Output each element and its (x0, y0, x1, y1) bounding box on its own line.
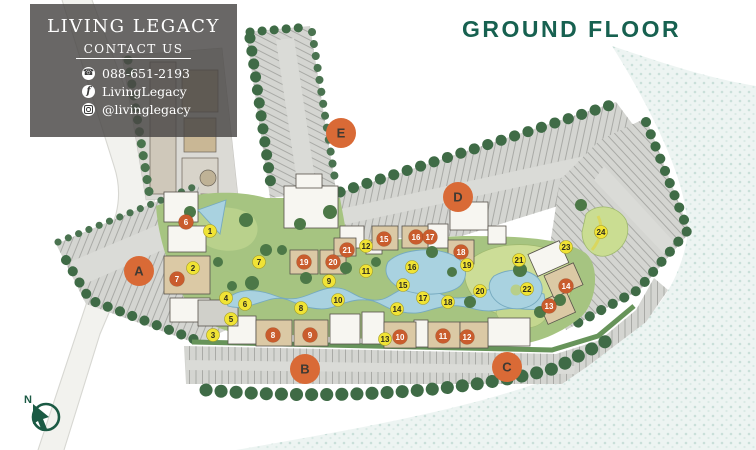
svg-text:8: 8 (271, 331, 276, 340)
svg-text:13: 13 (545, 302, 554, 311)
facility-marker-4[interactable]: 4 (220, 292, 233, 305)
facility-marker-19[interactable]: 19 (461, 259, 474, 272)
svg-text:15: 15 (380, 235, 389, 244)
parking-arm-e (246, 26, 336, 198)
svg-text:16: 16 (412, 233, 421, 242)
svg-text:18: 18 (457, 248, 466, 257)
facility-marker-17[interactable]: 17 (417, 292, 430, 305)
unit-marker-19[interactable]: 19 (297, 255, 312, 270)
unit-marker-14[interactable]: 14 (559, 279, 574, 294)
contact-panel: LIVING LEGACY CONTACT US ☎ 088-651-2193 … (30, 4, 237, 137)
unit-marker-7[interactable]: 7 (170, 272, 185, 287)
facility-marker-8[interactable]: 8 (295, 302, 308, 315)
contact-instagram-text: @livinglegacy (102, 102, 191, 117)
unit-marker-21[interactable]: 21 (340, 243, 355, 258)
svg-text:20: 20 (476, 287, 485, 296)
svg-text:24: 24 (597, 228, 606, 237)
svg-text:17: 17 (426, 233, 435, 242)
facility-marker-2[interactable]: 2 (187, 262, 200, 275)
svg-text:21: 21 (343, 246, 352, 255)
svg-text:E: E (337, 126, 346, 141)
facility-marker-1[interactable]: 1 (204, 225, 217, 238)
svg-text:13: 13 (381, 335, 390, 344)
building-marker-D[interactable]: D (443, 182, 473, 212)
svg-text:9: 9 (308, 331, 313, 340)
facility-marker-12[interactable]: 12 (360, 240, 373, 253)
svg-text:1: 1 (208, 227, 213, 236)
contact-facebook-text: LivingLegacy (102, 84, 187, 99)
svg-text:12: 12 (362, 242, 371, 251)
svg-text:4: 4 (224, 294, 229, 303)
unit-marker-12[interactable]: 12 (460, 330, 475, 345)
unit-marker-13[interactable]: 13 (542, 299, 557, 314)
svg-text:18: 18 (444, 298, 453, 307)
svg-text:11: 11 (439, 332, 448, 341)
building-marker-B[interactable]: B (290, 354, 320, 384)
svg-text:14: 14 (562, 282, 571, 291)
svg-text:16: 16 (408, 263, 417, 272)
unit-marker-11[interactable]: 11 (436, 329, 451, 344)
unit-marker-8[interactable]: 8 (266, 328, 281, 343)
facility-marker-10[interactable]: 10 (332, 294, 345, 307)
unit-marker-18[interactable]: 18 (454, 245, 469, 260)
facility-marker-24[interactable]: 24 (595, 226, 608, 239)
building-marker-E[interactable]: E (326, 118, 356, 148)
facility-marker-22[interactable]: 22 (521, 283, 534, 296)
unit-marker-6[interactable]: 6 (179, 215, 194, 230)
svg-text:3: 3 (211, 331, 216, 340)
unit-marker-9[interactable]: 9 (303, 328, 318, 343)
svg-text:14: 14 (393, 305, 402, 314)
north-label: N (24, 394, 32, 406)
phone-icon: ☎ (82, 67, 95, 80)
unit-marker-20[interactable]: 20 (326, 255, 341, 270)
facebook-icon: f (82, 85, 95, 98)
svg-text:A: A (134, 264, 144, 279)
svg-text:7: 7 (257, 258, 262, 267)
svg-text:2: 2 (191, 264, 196, 273)
svg-text:21: 21 (515, 256, 524, 265)
facility-marker-9[interactable]: 9 (323, 275, 336, 288)
svg-text:19: 19 (300, 258, 309, 267)
svg-text:6: 6 (243, 300, 248, 309)
contact-us-heading: CONTACT US (76, 42, 192, 59)
contact-phone[interactable]: ☎ 088-651-2193 (82, 66, 190, 81)
svg-text:8: 8 (299, 304, 304, 313)
svg-text:C: C (502, 360, 512, 375)
svg-text:10: 10 (334, 296, 343, 305)
facility-marker-11[interactable]: 11 (360, 265, 373, 278)
facility-marker-7[interactable]: 7 (253, 256, 266, 269)
unit-marker-16[interactable]: 16 (409, 230, 424, 245)
svg-text:19: 19 (463, 261, 472, 270)
page-title: GROUND FLOOR (462, 16, 681, 43)
svg-text:22: 22 (523, 285, 532, 294)
facility-marker-18[interactable]: 18 (442, 296, 455, 309)
svg-text:11: 11 (362, 267, 371, 276)
svg-text:9: 9 (327, 277, 332, 286)
facility-marker-6[interactable]: 6 (239, 298, 252, 311)
facility-marker-5[interactable]: 5 (225, 313, 238, 326)
contact-instagram[interactable]: @livinglegacy (82, 102, 191, 117)
svg-text:20: 20 (329, 258, 338, 267)
unit-marker-10[interactable]: 10 (393, 330, 408, 345)
svg-text:B: B (300, 362, 309, 377)
svg-text:7: 7 (175, 275, 180, 284)
facility-marker-13[interactable]: 13 (379, 333, 392, 346)
svg-text:17: 17 (419, 294, 428, 303)
ground-floor-plan-page: SUKHUMVIT 77 ROAD (0, 0, 756, 450)
svg-text:D: D (453, 190, 462, 205)
unit-marker-15[interactable]: 15 (377, 232, 392, 247)
building-marker-A[interactable]: A (124, 256, 154, 286)
facility-marker-15[interactable]: 15 (397, 279, 410, 292)
facility-marker-20[interactable]: 20 (474, 285, 487, 298)
unit-marker-17[interactable]: 17 (423, 230, 438, 245)
svg-text:5: 5 (229, 315, 234, 324)
brand-logo: LIVING LEGACY (30, 16, 237, 37)
facility-marker-14[interactable]: 14 (391, 303, 404, 316)
svg-text:15: 15 (399, 281, 408, 290)
contact-facebook[interactable]: f LivingLegacy (82, 84, 187, 99)
facility-marker-23[interactable]: 23 (560, 241, 573, 254)
svg-text:10: 10 (396, 333, 405, 342)
building-marker-C[interactable]: C (492, 352, 522, 382)
instagram-icon (82, 103, 95, 116)
facility-marker-21[interactable]: 21 (513, 254, 526, 267)
facility-marker-16[interactable]: 16 (406, 261, 419, 274)
facility-marker-3[interactable]: 3 (207, 329, 220, 342)
svg-text:6: 6 (184, 218, 189, 227)
contact-phone-text: 088-651-2193 (102, 66, 190, 81)
svg-text:12: 12 (463, 333, 472, 342)
svg-text:23: 23 (562, 243, 571, 252)
